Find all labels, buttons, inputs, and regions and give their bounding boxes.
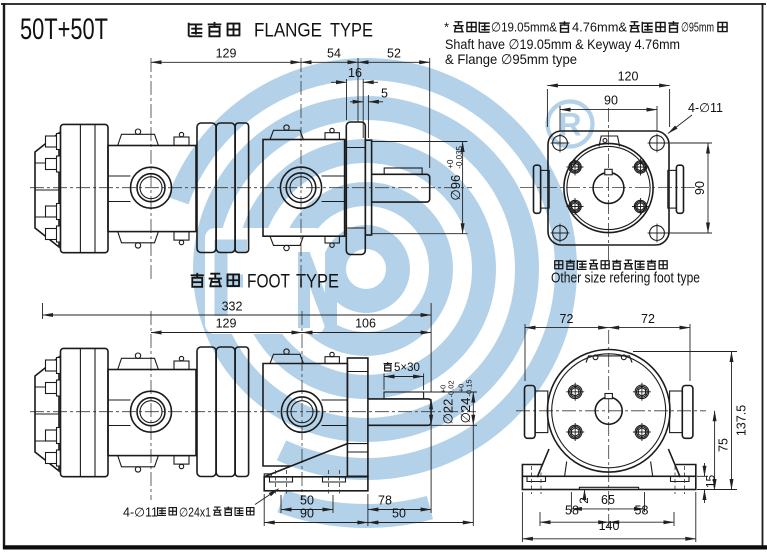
svg-text:4-∅11: 4-∅11 bbox=[123, 506, 158, 520]
svg-text:52: 52 bbox=[387, 47, 401, 61]
svg-text:TYPE: TYPE bbox=[330, 20, 373, 42]
svg-text:332: 332 bbox=[222, 300, 243, 314]
svg-text:140: 140 bbox=[599, 519, 620, 533]
svg-text:90: 90 bbox=[693, 181, 707, 195]
svg-text:120: 120 bbox=[618, 70, 639, 84]
svg-text:75: 75 bbox=[717, 438, 731, 452]
svg-text:4.76mm&: 4.76mm& bbox=[572, 20, 627, 35]
svg-text:Shaft have ∅19.05mm & Keyway: Shaft have ∅19.05mm & Keyway 4.76mm bbox=[445, 36, 680, 52]
svg-text:50: 50 bbox=[300, 494, 314, 508]
svg-text:129: 129 bbox=[216, 317, 237, 331]
svg-text:+0: +0 bbox=[446, 159, 455, 169]
svg-text:TYPE: TYPE bbox=[296, 271, 339, 293]
svg-text:90: 90 bbox=[604, 94, 618, 108]
svg-text:-0.15: -0.15 bbox=[465, 379, 474, 396]
svg-text:72: 72 bbox=[641, 312, 655, 326]
svg-text:50: 50 bbox=[392, 507, 406, 521]
svg-text:90: 90 bbox=[300, 507, 314, 521]
svg-text:54: 54 bbox=[327, 47, 341, 61]
svg-text:-0.02: -0.02 bbox=[447, 380, 456, 397]
svg-text:∅96: ∅96 bbox=[448, 175, 463, 201]
svg-text:∅24x1: ∅24x1 bbox=[179, 506, 211, 520]
svg-text:65: 65 bbox=[601, 493, 615, 507]
svg-text:∅24: ∅24 bbox=[458, 398, 473, 424]
svg-text:129: 129 bbox=[216, 47, 237, 61]
svg-text:2: 2 bbox=[579, 497, 591, 503]
svg-text:Other size refering foot type: Other size refering foot type bbox=[551, 271, 700, 287]
svg-text:FOOT: FOOT bbox=[247, 271, 290, 293]
svg-text:137.5: 137.5 bbox=[735, 405, 749, 436]
svg-text:*: * bbox=[444, 20, 449, 35]
svg-text:-0.035: -0.035 bbox=[455, 145, 464, 168]
svg-text:R: R bbox=[558, 107, 581, 143]
svg-text:∅22: ∅22 bbox=[441, 399, 456, 425]
svg-text:106: 106 bbox=[355, 317, 376, 331]
svg-text:5: 5 bbox=[381, 87, 388, 101]
svg-text:∅95mm: ∅95mm bbox=[681, 20, 714, 35]
svg-text:FLANGE: FLANGE bbox=[254, 20, 322, 42]
svg-text:5×30: 5×30 bbox=[394, 362, 420, 374]
svg-text:∅19.05mm&: ∅19.05mm& bbox=[491, 20, 557, 35]
svg-text:72: 72 bbox=[560, 312, 574, 326]
svg-text:& Flange ∅95mm type: & Flange ∅95mm type bbox=[445, 51, 577, 67]
svg-text:50T+50T: 50T+50T bbox=[20, 13, 108, 46]
svg-text:78: 78 bbox=[378, 494, 392, 508]
svg-text:58: 58 bbox=[565, 504, 579, 518]
svg-text:15: 15 bbox=[704, 475, 718, 489]
svg-text:16: 16 bbox=[348, 66, 362, 80]
svg-text:58: 58 bbox=[635, 504, 649, 518]
svg-text:4-∅11: 4-∅11 bbox=[688, 101, 723, 115]
